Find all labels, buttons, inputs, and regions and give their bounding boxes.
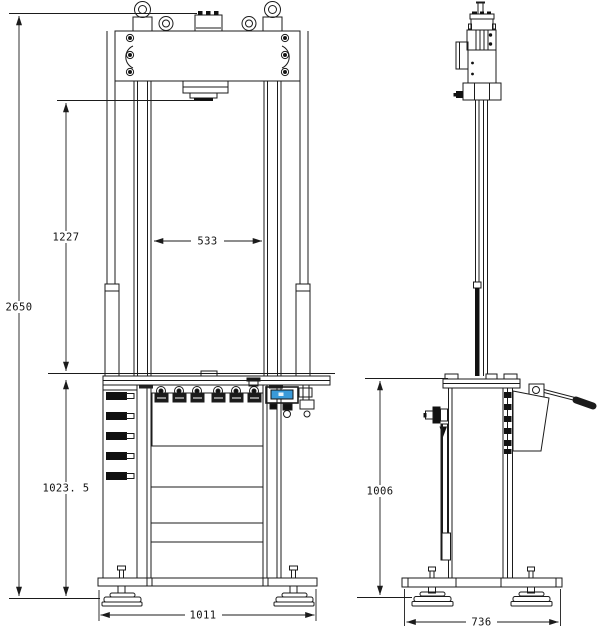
dim-label-column-gap: 533 <box>197 236 217 248</box>
valve-unit <box>212 387 225 403</box>
column-cap <box>133 17 152 31</box>
dim-overall-height: 2650 <box>3 14 197 599</box>
pressure-gauge-blue <box>266 385 314 418</box>
dim-column-gap: 533 <box>154 235 262 248</box>
dim-base-width-side: 736 <box>405 589 561 629</box>
worktable-side <box>443 374 520 388</box>
side-view <box>402 3 593 607</box>
column-side <box>474 100 488 376</box>
valve-unit <box>173 387 186 403</box>
handle-grip <box>576 400 593 406</box>
technical-drawing: 2650 1227 1023. 5 533 1011 <box>0 0 606 631</box>
valve-unit <box>155 387 168 403</box>
hand-valve <box>424 407 448 438</box>
valve-unit <box>191 387 204 403</box>
column-cap <box>263 17 282 31</box>
dim-label-ram-to-table: 1227 <box>53 232 80 244</box>
technical-drawing-page: 2650 1227 1023. 5 533 1011 <box>0 0 606 631</box>
dim-table-height-front: 1023. 5 <box>42 380 90 596</box>
dim-label-base-width-front: 1011 <box>190 610 217 622</box>
dim-label-table-height-front: 1023. 5 <box>42 483 89 495</box>
base-front <box>98 578 317 586</box>
cylinder-side <box>454 3 502 101</box>
side-cover-panel <box>513 391 549 451</box>
dim-base-width-front: 1011 <box>99 589 316 622</box>
dim-label-base-width-side: 736 <box>471 617 491 629</box>
tool-rack-cabinet <box>103 384 137 578</box>
frame-columns <box>134 81 281 378</box>
base-side <box>402 578 562 587</box>
cylinder-top-block <box>195 11 222 31</box>
dim-label-overall-height: 2650 <box>6 302 33 314</box>
cross-rails <box>151 487 263 542</box>
body-side <box>441 388 513 578</box>
dim-label-table-height-side: 1006 <box>367 486 394 498</box>
lower-panel <box>152 393 263 446</box>
hydraulic-ram <box>183 81 228 101</box>
valve-unit <box>230 387 243 403</box>
front-view <box>98 2 330 607</box>
